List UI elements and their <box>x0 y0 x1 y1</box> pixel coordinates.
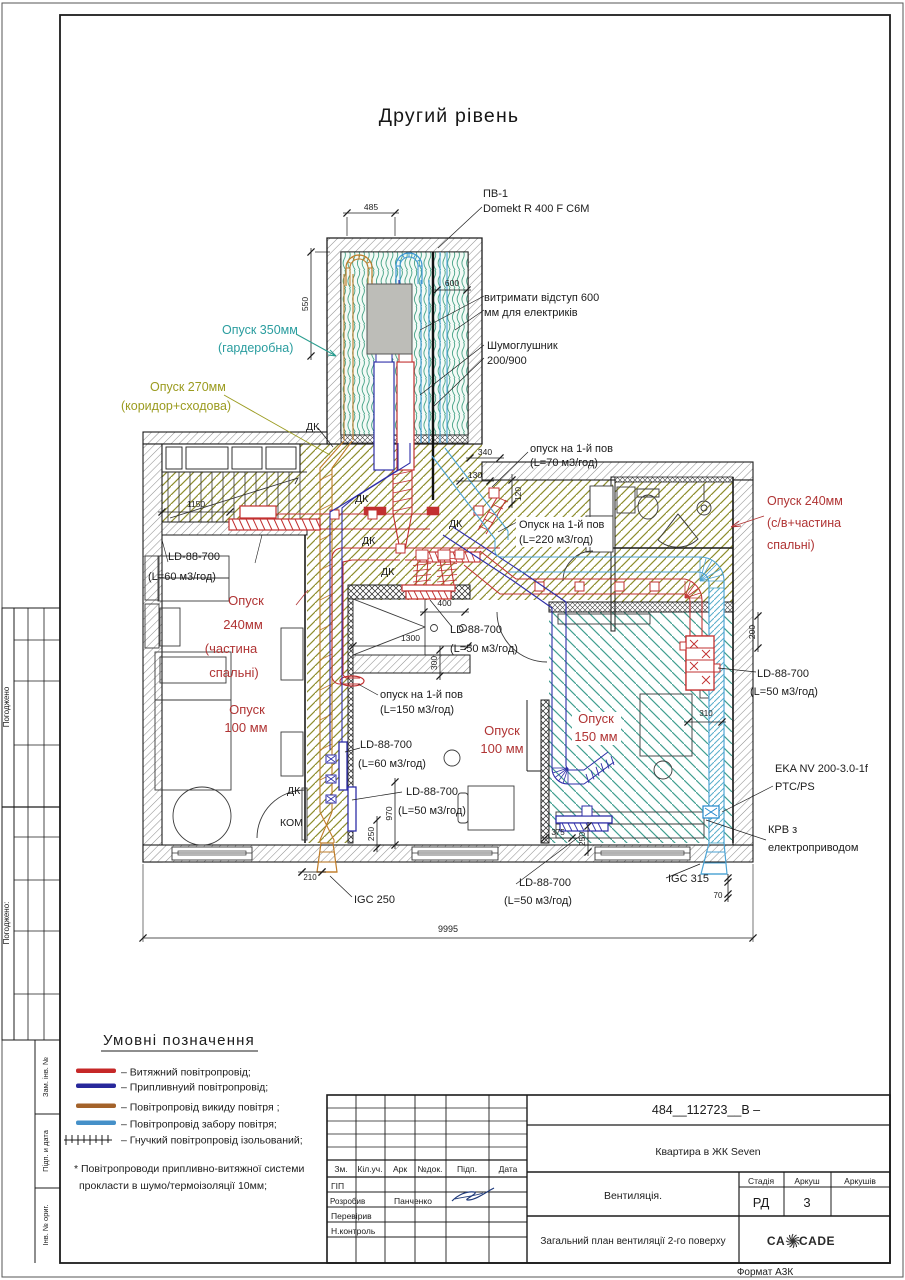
svg-text:Вентиляція.: Вентиляція. <box>604 1190 662 1202</box>
svg-text:130: 130 <box>468 470 482 480</box>
svg-text:ДК: ДК <box>306 421 320 433</box>
svg-text:Опуск 240мм: Опуск 240мм <box>767 494 843 508</box>
svg-text:– Гнучкий повітропровід ізольо: – Гнучкий повітропровід ізольований; <box>121 1135 303 1147</box>
svg-text:мм для електриків: мм для електриків <box>484 307 578 319</box>
svg-text:PTC/PS: PTC/PS <box>775 781 815 793</box>
svg-text:(L=50 м3/год): (L=50 м3/год) <box>450 643 518 655</box>
svg-text:ДК: ДК <box>449 518 463 530</box>
svg-text:Опуск на 1-й пов: Опуск на 1-й пов <box>519 519 605 531</box>
svg-text:Розробив: Розробив <box>330 1197 365 1206</box>
svg-text:300: 300 <box>429 656 439 670</box>
svg-text:CADE: CADE <box>799 1234 835 1248</box>
svg-text:Аркуш: Аркуш <box>794 1176 819 1186</box>
svg-text:970: 970 <box>384 806 394 820</box>
svg-text:150 мм: 150 мм <box>574 729 617 744</box>
svg-text:120: 120 <box>513 487 523 501</box>
svg-text:Кіл.уч.: Кіл.уч. <box>357 1164 382 1174</box>
svg-text:Формат А3К: Формат А3К <box>737 1267 794 1278</box>
svg-text:Аркушів: Аркушів <box>844 1176 876 1186</box>
svg-text:IGC 250: IGC 250 <box>354 894 395 906</box>
svg-text:Підп.: Підп. <box>457 1164 477 1174</box>
svg-text:– Повітропровід викиду повітря: – Повітропровід викиду повітря ; <box>121 1102 280 1114</box>
svg-text:Опуск: Опуск <box>578 711 614 726</box>
svg-text:Квартира в ЖК Seven: Квартира в ЖК Seven <box>655 1146 760 1158</box>
svg-text:LD-88-700: LD-88-700 <box>519 877 571 889</box>
svg-text:№док.: №док. <box>418 1164 443 1174</box>
svg-text:– Витяжний повітропровід;: – Витяжний повітропровід; <box>121 1067 251 1079</box>
svg-text:375: 375 <box>551 828 565 837</box>
svg-text:Загальний план вентиляції 2-го: Загальний план вентиляції 2-го поверху <box>540 1236 725 1247</box>
svg-text:1300: 1300 <box>401 633 420 643</box>
svg-text:Другий рівень: Другий рівень <box>379 105 520 127</box>
svg-text:550: 550 <box>300 297 310 311</box>
svg-text:ГІП: ГІП <box>331 1181 344 1191</box>
svg-text:9995: 9995 <box>438 924 458 934</box>
svg-text:(L=60 м3/год): (L=60 м3/год) <box>148 571 216 583</box>
svg-text:200/900: 200/900 <box>487 355 527 367</box>
svg-text:опуск на 1-й пов: опуск на 1-й пов <box>530 443 613 455</box>
svg-text:КРВ з: КРВ з <box>768 824 797 836</box>
svg-text:Зам. інв. №: Зам. інв. № <box>41 1057 50 1097</box>
svg-text:70: 70 <box>714 891 723 900</box>
svg-text:Стадія: Стадія <box>748 1176 775 1186</box>
svg-text:ПВ-1: ПВ-1 <box>483 188 508 200</box>
svg-text:опуск на 1-й пов: опуск на 1-й пов <box>380 689 463 701</box>
svg-text:LD-88-700: LD-88-700 <box>406 786 458 798</box>
svg-text:484__112723__В –: 484__112723__В – <box>652 1103 760 1117</box>
svg-text:спальні): спальні) <box>767 538 815 552</box>
svg-text:Шумоглушник: Шумоглушник <box>487 340 558 352</box>
svg-text:485: 485 <box>364 202 378 212</box>
svg-text:Н.контроль: Н.контроль <box>331 1226 376 1236</box>
svg-text:240мм: 240мм <box>223 617 263 632</box>
svg-text:100 мм: 100 мм <box>224 720 267 735</box>
svg-text:CA: CA <box>767 1234 785 1248</box>
svg-text:витримати відступ 600: витримати відступ 600 <box>484 292 599 304</box>
svg-text:Панченко: Панченко <box>394 1196 432 1206</box>
svg-text:340: 340 <box>478 447 492 457</box>
svg-text:– Припливнуий повітропровід;: – Припливнуий повітропровід; <box>121 1082 268 1094</box>
svg-text:прокласти в шумо/термоізоляції: прокласти в шумо/термоізоляції 10мм; <box>79 1180 267 1192</box>
svg-text:100 мм: 100 мм <box>480 741 523 756</box>
svg-text:– Повітропровід забору повітря: – Повітропровід забору повітря; <box>121 1119 277 1131</box>
svg-text:Зм.: Зм. <box>334 1164 347 1174</box>
svg-text:Опуск: Опуск <box>484 723 520 738</box>
svg-text:(L=70 м3/год): (L=70 м3/год) <box>530 457 598 469</box>
svg-text:ДК: ДК <box>362 535 376 547</box>
svg-text:(с/в+частина: (с/в+частина <box>767 516 841 530</box>
svg-text:(гардеробна): (гардеробна) <box>218 341 293 355</box>
svg-text:РД: РД <box>753 1195 770 1210</box>
svg-text:250: 250 <box>366 827 376 841</box>
svg-text:(частина: (частина <box>205 641 258 656</box>
svg-text:спальні): спальні) <box>209 665 259 680</box>
svg-text:310: 310 <box>699 709 713 718</box>
svg-text:400: 400 <box>437 598 451 608</box>
svg-text:LD-88-700: LD-88-700 <box>168 551 220 563</box>
svg-text:IGC 315: IGC 315 <box>668 873 709 885</box>
svg-text:Domekt R 400 F C6M: Domekt R 400 F C6M <box>483 203 589 215</box>
svg-text:(L=50 м3/год): (L=50 м3/год) <box>398 805 466 817</box>
svg-text:(L=50 м3/год): (L=50 м3/год) <box>504 895 572 907</box>
svg-text:КОМ: КОМ <box>280 817 303 829</box>
svg-text:1150: 1150 <box>187 499 206 509</box>
svg-text:Погоджено: Погоджено <box>2 686 11 727</box>
svg-text:Арк: Арк <box>393 1164 407 1174</box>
svg-text:Підп. и дата: Підп. и дата <box>41 1129 50 1172</box>
svg-text:ДК: ДК <box>355 493 369 505</box>
svg-text:Умовні позначення: Умовні позначення <box>103 1032 255 1049</box>
svg-text:ДК: ДК <box>381 566 395 578</box>
svg-text:Опуск 350мм: Опуск 350мм <box>222 323 298 337</box>
svg-text:(L=150 м3/год): (L=150 м3/год) <box>380 704 454 716</box>
svg-text:(L=50 м3/год): (L=50 м3/год) <box>750 686 818 698</box>
svg-text:Опуск 270мм: Опуск 270мм <box>150 380 226 394</box>
svg-text:LD-88-700: LD-88-700 <box>450 624 502 636</box>
svg-text:210: 210 <box>303 873 317 882</box>
svg-text:3: 3 <box>803 1195 810 1210</box>
svg-text:LD-88-700: LD-88-700 <box>757 668 809 680</box>
svg-text:Опуск: Опуск <box>229 702 265 717</box>
svg-text:(L=60 м3/год): (L=60 м3/год) <box>358 758 426 770</box>
svg-text:250: 250 <box>577 832 587 846</box>
svg-text:LD-88-700: LD-88-700 <box>360 739 412 751</box>
svg-text:* Повітропроводи припливно-вит: * Повітропроводи припливно-витяжної сист… <box>74 1163 304 1175</box>
svg-text:ДК: ДК <box>287 785 301 797</box>
svg-text:електроприводом: електроприводом <box>768 842 858 854</box>
svg-text:EKA NV 200-3.0-1f: EKA NV 200-3.0-1f <box>775 763 869 775</box>
svg-text:Перевірив: Перевірив <box>331 1211 372 1221</box>
svg-text:200: 200 <box>747 625 757 639</box>
svg-text:600: 600 <box>445 278 459 288</box>
svg-text:Дата: Дата <box>499 1164 518 1174</box>
svg-text:(коридор+сходова): (коридор+сходова) <box>121 399 231 413</box>
svg-text:Опуск: Опуск <box>228 593 264 608</box>
svg-text:Погоджено:: Погоджено: <box>2 902 11 945</box>
svg-text:(L=220 м3/год): (L=220 м3/год) <box>519 534 593 546</box>
svg-text:Інв. № ориг.: Інв. № ориг. <box>41 1205 50 1246</box>
